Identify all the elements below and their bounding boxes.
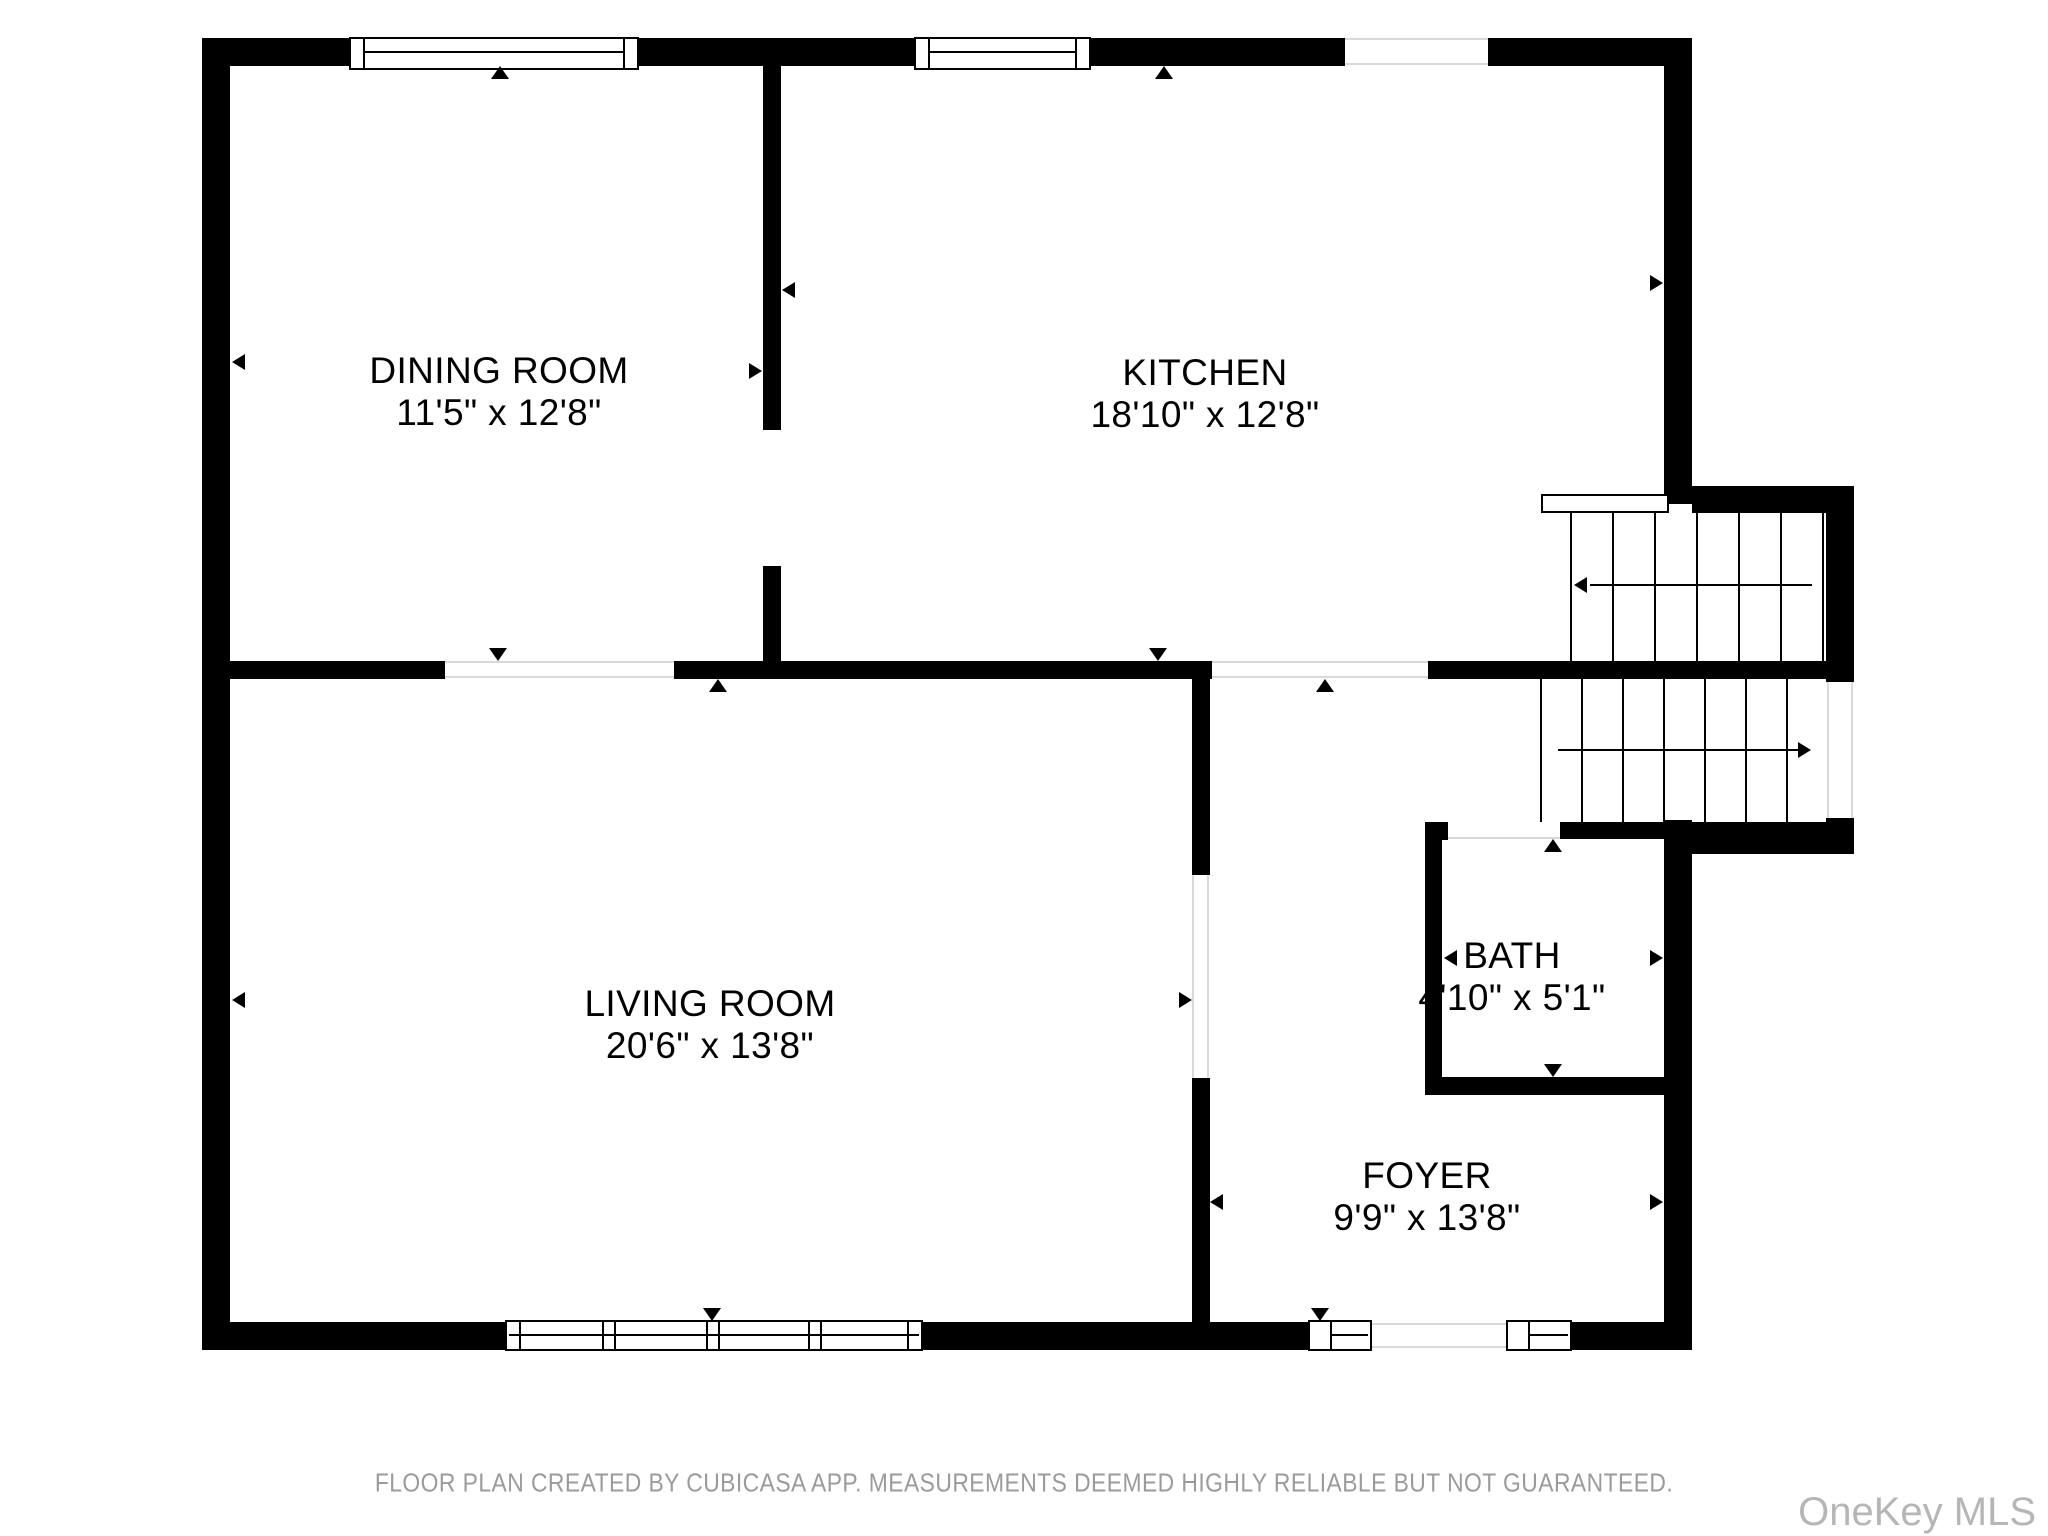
marker-bath-bottom: [1544, 1064, 1562, 1077]
marker-kitchen-top: [1155, 66, 1173, 79]
stairs-down-arrow-line: [1558, 749, 1798, 751]
stairs-up-arrowhead: [1574, 577, 1587, 593]
opening-kitchen-hall-b: [1212, 676, 1428, 678]
opening-dining-living-a: [445, 661, 674, 663]
room-name: LIVING ROOM: [584, 983, 835, 1025]
marker-living-left: [232, 992, 245, 1008]
window-foyer-left: [1308, 1320, 1372, 1351]
opening-front-door-b: [1372, 1346, 1506, 1348]
opening-stair-right-a: [1827, 682, 1829, 818]
window-midline: [509, 1334, 919, 1336]
marker-divider-kitchen: [782, 282, 795, 298]
wall-stair-middle: [1428, 661, 1826, 679]
window-endcap: [363, 39, 365, 68]
window-endcap: [928, 39, 930, 68]
room-dims: 11'5" x 12'8": [369, 392, 628, 434]
marker-divider-dining: [749, 363, 762, 379]
opening-top-gap-lower: [1345, 63, 1488, 65]
marker-kitchen-bottom: [1149, 648, 1167, 661]
room-dims: 18'10" x 12'8": [1090, 394, 1319, 436]
opening-stair-right-b: [1851, 682, 1853, 818]
wall-stair-right: [1826, 486, 1854, 682]
marker-dining-window: [491, 66, 509, 79]
marker-kitchen-right: [1650, 275, 1663, 291]
opening-dining-living-b: [445, 676, 674, 678]
window-divider: [808, 1322, 810, 1349]
room-label-bath: BATH 4'10" x 5'1": [1418, 935, 1605, 1019]
footer-disclaimer: FLOOR PLAN CREATED BY CUBICASA APP. MEAS…: [375, 1468, 1673, 1499]
window-endcap: [907, 1322, 909, 1349]
wall-top-c: [1089, 38, 1345, 66]
wall-top-b: [637, 38, 916, 66]
wall-dining-kitchen-lower: [763, 566, 781, 664]
room-dims: 20'6" x 13'8": [584, 1025, 835, 1067]
room-label-living: LIVING ROOM 20'6" x 13'8": [584, 983, 835, 1067]
wall-top-a: [202, 38, 351, 66]
stairs-upper-flight: [1570, 513, 1826, 661]
wall-bath-left: [1425, 822, 1442, 1094]
stairs-landing-edge: [1541, 494, 1669, 513]
window-divider: [718, 1322, 720, 1349]
opening-living-foyer-b: [1207, 875, 1209, 1078]
room-name: DINING ROOM: [369, 350, 628, 392]
marker-bath-left: [1444, 950, 1457, 966]
window-divider: [820, 1322, 822, 1349]
room-label-dining: DINING ROOM 11'5" x 12'8": [369, 350, 628, 434]
wall-top-d: [1488, 38, 1692, 66]
wall-dining-kitchen-upper: [763, 66, 781, 430]
wall-right-upper: [1664, 38, 1692, 504]
watermark-onekey-mls: OneKey MLS: [1798, 1490, 2036, 1535]
window-midline: [928, 51, 1077, 53]
marker-bath-right: [1650, 950, 1663, 966]
marker-dining-left: [232, 354, 245, 370]
wall-bath-left-stub: [1425, 822, 1448, 840]
marker-hall-opening: [1316, 679, 1334, 692]
marker-foyer-right: [1650, 1194, 1663, 1210]
room-name: FOYER: [1333, 1155, 1520, 1197]
window-foyer-right: [1506, 1320, 1572, 1351]
window-midline: [1330, 1334, 1368, 1336]
marker-bath-door: [1544, 839, 1562, 852]
marker-foyer-divider-west: [1179, 992, 1192, 1008]
wall-dining-living: [230, 661, 445, 679]
window-divider: [614, 1322, 616, 1349]
room-dims: 4'10" x 5'1": [1418, 977, 1605, 1019]
window-endcap: [623, 39, 625, 68]
wall-living-foyer-lower: [1192, 1078, 1210, 1322]
marker-foyer-divider-east: [1210, 1194, 1223, 1210]
marker-foyer-window: [1311, 1308, 1329, 1321]
room-label-foyer: FOYER 9'9" x 13'8": [1333, 1155, 1520, 1239]
room-name: KITCHEN: [1090, 352, 1319, 394]
window-midline: [363, 51, 625, 53]
window-divider: [706, 1322, 708, 1349]
window-endcap: [1075, 39, 1077, 68]
window-divider: [602, 1322, 604, 1349]
window-kitchen: [914, 37, 1091, 70]
stairs-up-arrow-line: [1590, 584, 1812, 586]
wall-bottom-c: [1570, 1322, 1692, 1350]
stairs-down-arrowhead: [1798, 742, 1811, 758]
wall-bottom-b: [921, 1322, 1310, 1350]
window-living-band: [505, 1320, 923, 1351]
room-dims: 9'9" x 13'8": [1333, 1197, 1520, 1239]
wall-bottom-a: [202, 1322, 507, 1350]
window-endcap: [519, 1322, 521, 1349]
window-midline: [1528, 1334, 1568, 1336]
wall-bath-bottom: [1425, 1077, 1692, 1095]
opening-top-gap-upper: [1345, 38, 1488, 40]
wall-left: [202, 38, 230, 1350]
wall-stair-bottom: [1692, 822, 1854, 854]
opening-living-foyer-a: [1192, 875, 1194, 1078]
opening-kitchen-hall-a: [1212, 661, 1428, 663]
opening-front-door-a: [1372, 1323, 1506, 1325]
wall-living-foyer-upper: [1192, 661, 1210, 875]
marker-living-windows: [703, 1308, 721, 1321]
room-label-kitchen: KITCHEN 18'10" x 12'8": [1090, 352, 1319, 436]
marker-passage-dining: [489, 648, 507, 661]
floor-plan: DINING ROOM 11'5" x 12'8" KITCHEN 18'10"…: [0, 0, 2048, 1536]
marker-passage-living: [709, 679, 727, 692]
wall-bath-top: [1560, 822, 1692, 839]
wall-kitchen-living: [674, 661, 1212, 679]
